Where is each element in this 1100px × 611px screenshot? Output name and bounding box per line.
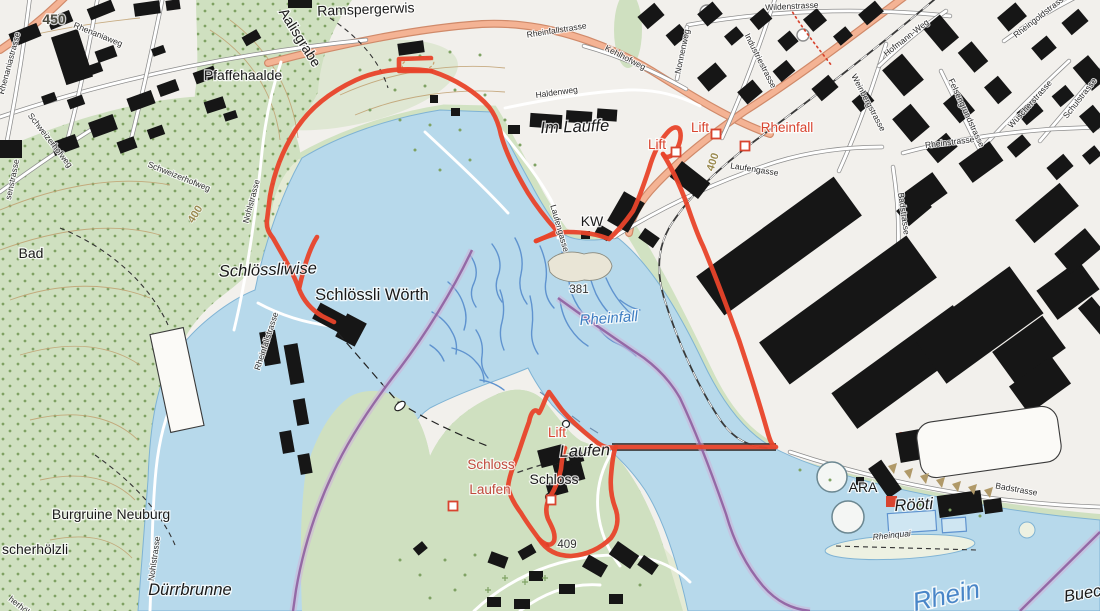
map-label: 450 <box>42 11 66 27</box>
map-label: Pfaffehaalde <box>204 67 283 83</box>
transport-stop-marker[interactable] <box>712 130 721 139</box>
map-label: Lift <box>648 137 666 152</box>
map-label: 381 <box>569 284 588 296</box>
map-viewport[interactable]: 450RamspergerwisAalisgrabePfaffehaaldeRh… <box>0 0 1100 611</box>
small-island <box>1019 522 1035 538</box>
map-label: ARA <box>849 479 878 495</box>
map-label: Schlössli Wörth <box>315 286 429 304</box>
rheinfall-rock-island <box>548 252 612 282</box>
map-label: Lift <box>691 120 709 135</box>
transport-stop-marker[interactable] <box>672 148 681 157</box>
map-label: Rööti <box>894 495 935 515</box>
map-label: Im Lauffe <box>540 117 609 137</box>
map-label: Burgruine Neuburg <box>52 506 170 522</box>
map-label: Dürrbrunne <box>148 581 231 599</box>
transport-stop-marker[interactable] <box>741 142 750 151</box>
transport-stop-marker[interactable] <box>547 496 556 505</box>
map-label: Bad <box>19 245 44 261</box>
map-label: Laufen <box>559 441 610 461</box>
map-label: scherhölzli <box>2 541 68 557</box>
map-label: Schlössliwise <box>218 259 317 280</box>
ara-tank <box>817 462 847 492</box>
map-label: Lift <box>548 425 566 440</box>
transport-stop-marker[interactable] <box>449 502 458 511</box>
map-label: KW <box>581 213 604 229</box>
map-label: Schloss <box>467 457 515 472</box>
map-label: Schloss <box>529 471 578 487</box>
ara-tank <box>832 501 864 533</box>
map-canvas: 450RamspergerwisAalisgrabePfaffehaaldeRh… <box>0 0 1100 611</box>
map-label: Laufen <box>469 482 510 497</box>
swimming-pool <box>942 517 967 533</box>
map-label: 409 <box>557 539 576 551</box>
map-label: Rheinfall <box>761 120 814 135</box>
